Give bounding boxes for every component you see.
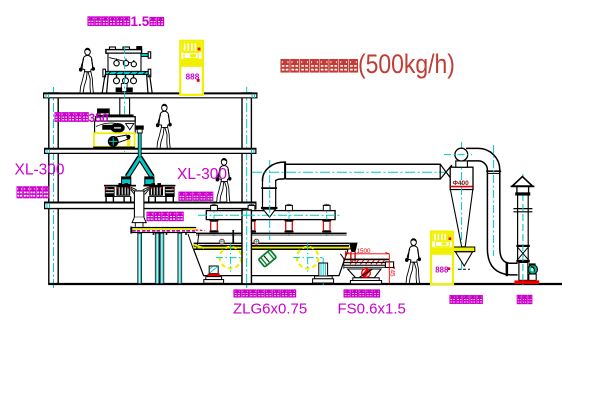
svg-text:ZLG6x0.75: ZLG6x0.75 (233, 300, 307, 317)
svg-text:1.5: 1.5 (131, 14, 150, 29)
svg-text:XL-300: XL-300 (177, 166, 227, 183)
svg-text:745: 745 (389, 266, 396, 277)
svg-text:Φ400: Φ400 (453, 180, 470, 187)
svg-text:XL-300: XL-300 (15, 162, 65, 179)
svg-text:FS0.6x1.5: FS0.6x1.5 (338, 300, 406, 317)
svg-text:350: 350 (89, 111, 109, 125)
svg-text:1500: 1500 (357, 248, 372, 255)
svg-text:888: 888 (435, 265, 449, 274)
svg-text:(500kg/h): (500kg/h) (358, 49, 455, 79)
